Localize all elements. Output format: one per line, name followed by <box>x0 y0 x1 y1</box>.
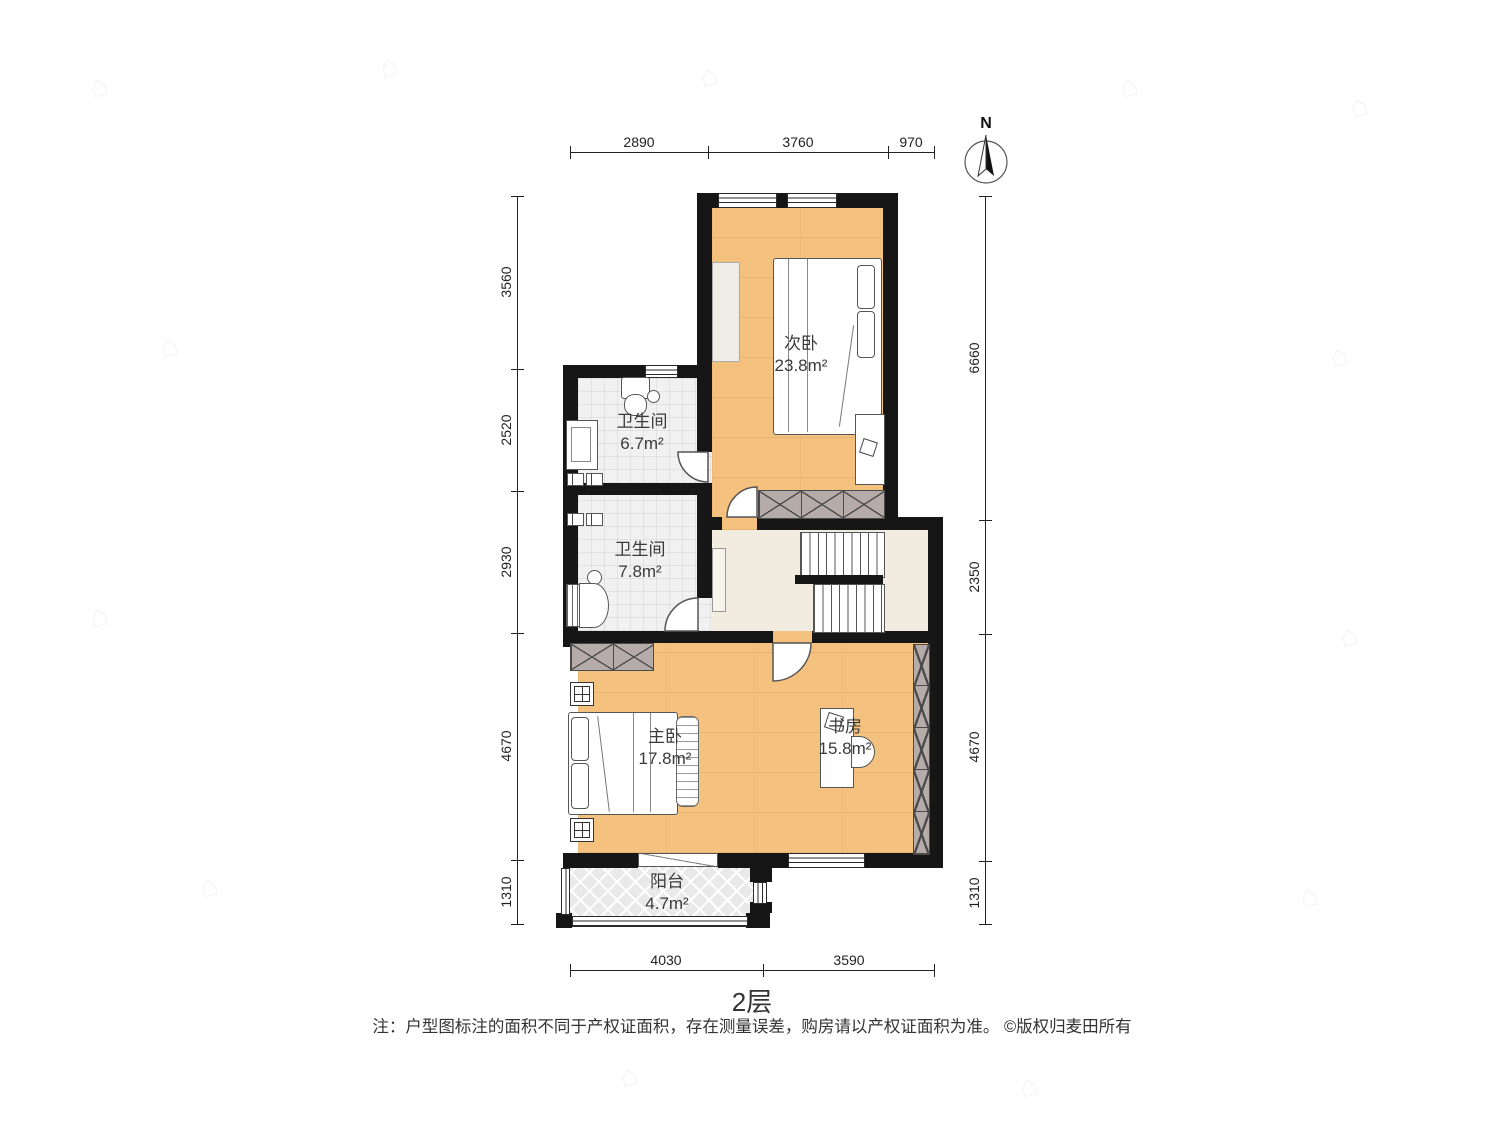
dim-tick <box>979 861 992 862</box>
dim-value: 4030 <box>650 952 681 970</box>
dim-tick <box>934 964 935 977</box>
dim-value: 4670 <box>966 731 982 762</box>
dim-value: 2520 <box>498 414 514 445</box>
dim-value: 6660 <box>966 342 982 373</box>
room-name: 次卧 <box>775 334 828 354</box>
room-name: 阳台 <box>645 872 688 892</box>
room-label-bathroom-upper: 卫生间 6.7m² <box>617 412 668 456</box>
room-area: 23.8m² <box>775 354 828 378</box>
floor-plan-page: ⌂ ⌂ ⌂ ⌂ ⌂ ⌂ ⌂ ⌂ ⌂ ⌂ ⌂ ⌂ ⌂ <box>0 0 1500 1125</box>
room-name: 卫生间 <box>615 540 666 560</box>
dim-value: 3560 <box>498 266 514 297</box>
room-name: 主卧 <box>639 727 692 747</box>
dim-value: 1310 <box>498 876 514 907</box>
room-area: 4.7m² <box>645 892 688 916</box>
dimension-line-bottom: 4030 3590 <box>570 970 935 971</box>
door-arc-bathroom-lower <box>665 598 698 631</box>
room-label-balcony: 阳台 4.7m² <box>645 872 688 916</box>
dim-value: 3760 <box>782 134 813 152</box>
dim-tick <box>763 964 764 977</box>
room-label-secondary-bedroom: 次卧 23.8m² <box>775 334 828 378</box>
disclaimer-note: 注：户型图标注的面积不同于产权证面积，存在测量误差，购房请以产权证面积为准。 ©… <box>372 1013 1131 1037</box>
dim-tick <box>979 520 992 521</box>
room-area: 17.8m² <box>639 747 692 771</box>
dim-tick <box>511 369 524 370</box>
dim-value: 1310 <box>966 877 982 908</box>
dim-value: 2350 <box>966 561 982 592</box>
compass: N <box>957 110 1015 202</box>
dim-tick <box>979 634 992 635</box>
room-name: 书房 <box>819 717 872 737</box>
dim-tick <box>511 196 524 197</box>
dim-tick <box>570 964 571 977</box>
dim-value: 2890 <box>623 134 654 152</box>
dim-tick <box>888 146 889 159</box>
door-arc-bathroom-upper <box>678 452 708 482</box>
room-label-bathroom-lower: 卫生间 7.8m² <box>615 540 666 584</box>
room-area: 7.8m² <box>615 560 666 584</box>
dim-tick <box>979 924 992 925</box>
compass-north-label: N <box>980 115 992 132</box>
dimension-line-right: 6660 2350 4670 1310 <box>985 196 986 925</box>
dimension-line-left: 3560 2520 2930 4670 1310 <box>517 196 518 925</box>
dim-tick <box>511 491 524 492</box>
dim-tick <box>708 146 709 159</box>
room-name: 卫生间 <box>617 412 668 432</box>
dim-tick <box>570 146 571 159</box>
dim-tick <box>511 860 524 861</box>
dim-value: 970 <box>899 134 922 152</box>
room-label-study: 书房 15.8m² <box>819 717 872 761</box>
room-area: 6.7m² <box>617 432 668 456</box>
room-area: 15.8m² <box>819 737 872 761</box>
dim-tick <box>511 924 524 925</box>
room-label-master-bedroom: 主卧 17.8m² <box>639 727 692 771</box>
door-arc-secondary-bedroom <box>727 487 757 517</box>
dim-tick <box>934 146 935 159</box>
door-arcs-overlay <box>0 0 1500 1125</box>
dim-tick <box>511 633 524 634</box>
dim-value: 4670 <box>498 730 514 761</box>
door-arc-master-area <box>773 643 811 681</box>
dimension-line-top: 2890 3760 970 <box>570 152 935 153</box>
dim-value: 2930 <box>498 546 514 577</box>
dim-value: 3590 <box>833 952 864 970</box>
